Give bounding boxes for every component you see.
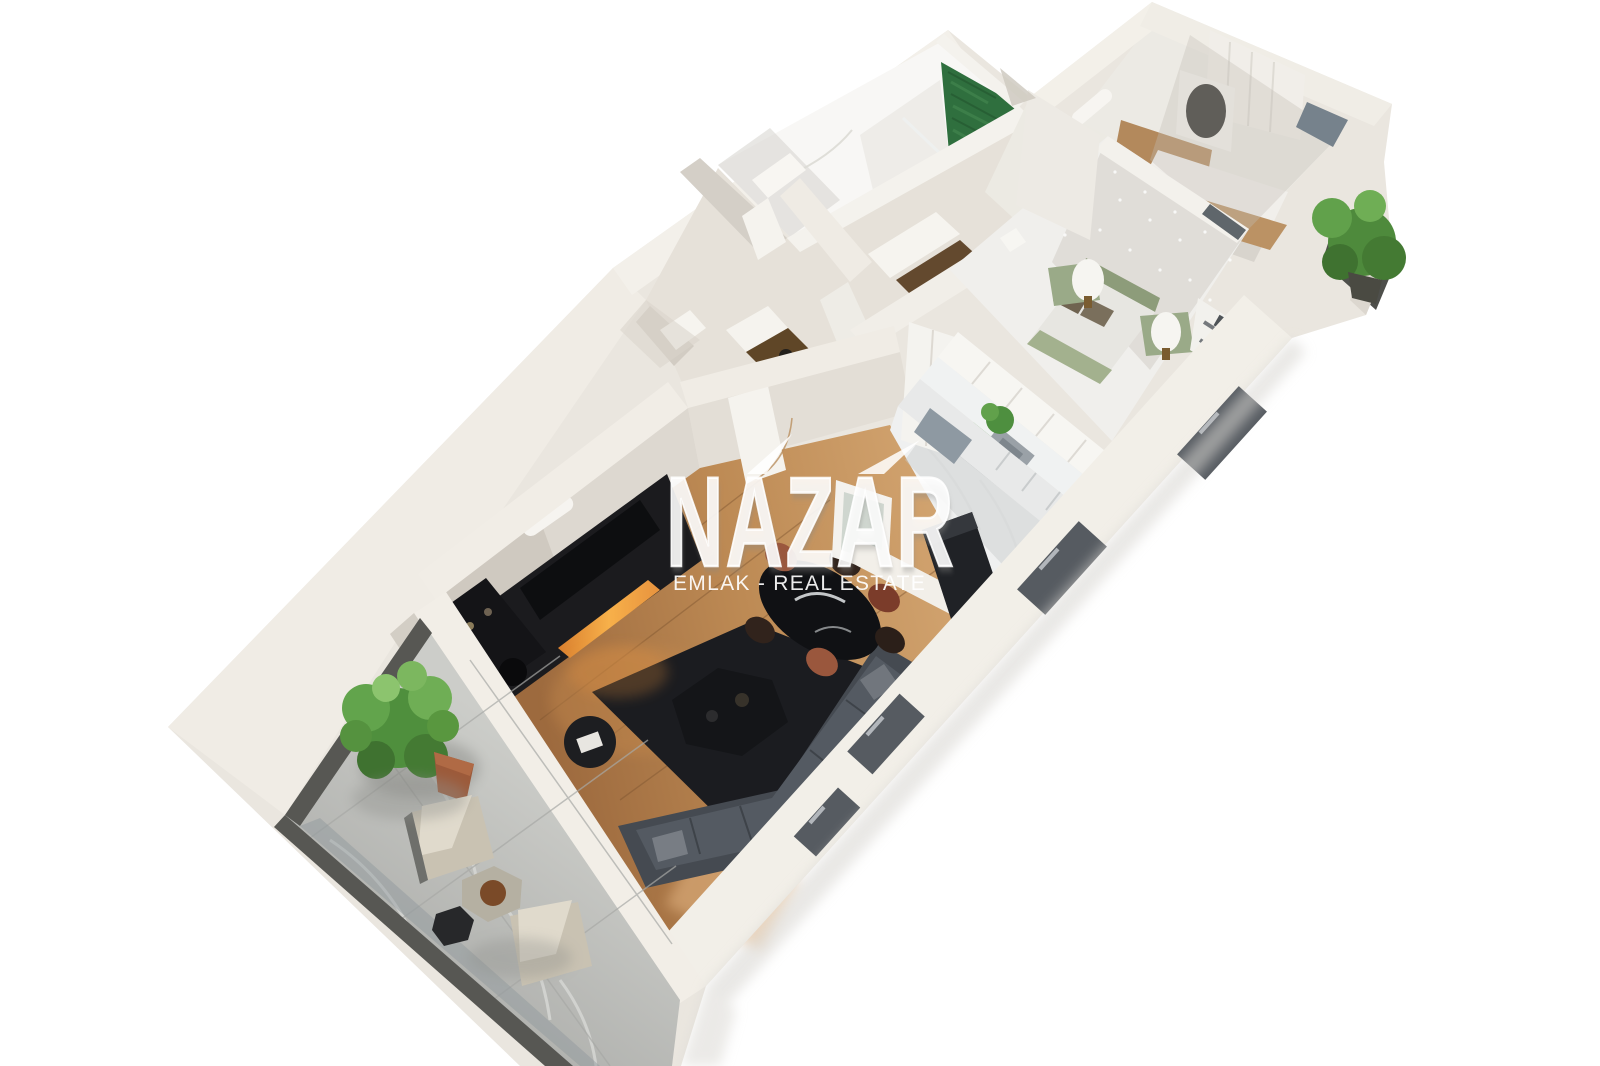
svg-text:EMLAK - REAL ESTATE: EMLAK - REAL ESTATE — [673, 572, 926, 595]
